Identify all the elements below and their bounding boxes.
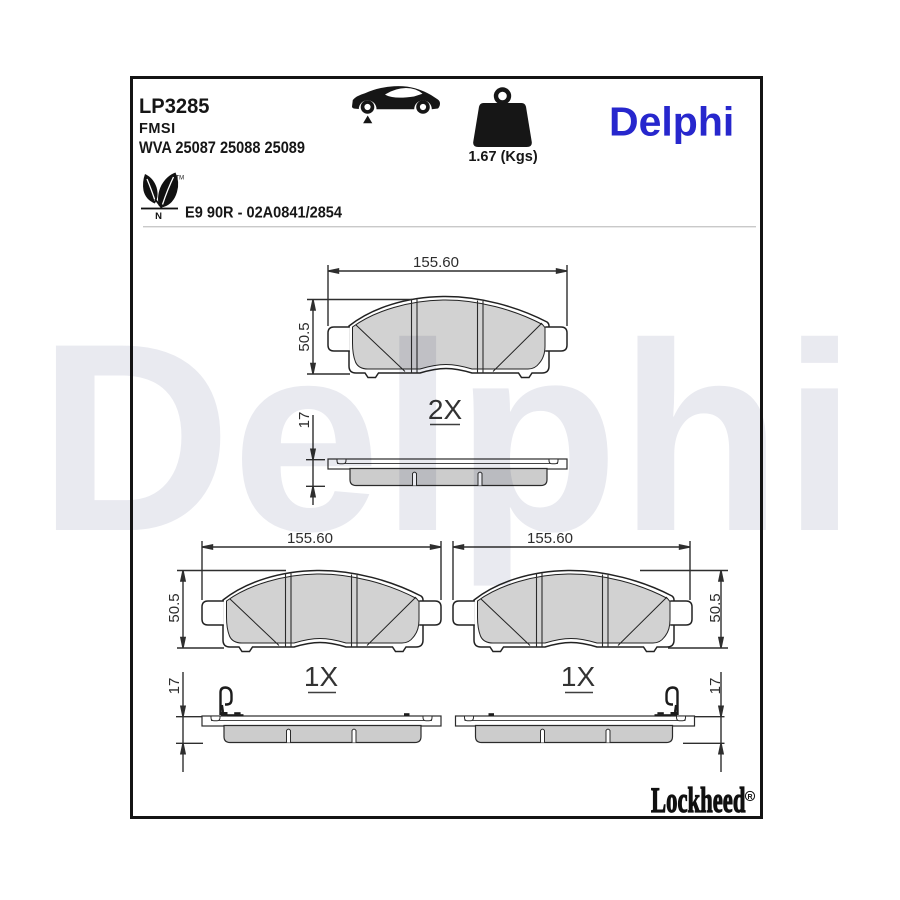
svg-text:WVA 25087 25088 25089: WVA 25087 25088 25089 — [139, 139, 305, 157]
svg-text:LP3285: LP3285 — [139, 94, 210, 118]
svg-text:Lockheed: Lockheed — [651, 780, 746, 821]
svg-text:N: N — [155, 211, 162, 222]
svg-text:FMSI: FMSI — [139, 121, 176, 137]
svg-text:1X: 1X — [561, 661, 596, 692]
svg-text:Delphi: Delphi — [609, 99, 734, 145]
svg-text:Delphi: Delphi — [38, 287, 857, 589]
svg-text:50.5: 50.5 — [707, 593, 724, 622]
svg-text:1X: 1X — [304, 661, 339, 692]
svg-text:TM: TM — [176, 176, 185, 182]
svg-text:R: R — [747, 794, 752, 801]
svg-text:E9 90R - 02A0841/2854: E9 90R - 02A0841/2854 — [185, 205, 342, 222]
svg-text:17: 17 — [166, 678, 183, 695]
svg-text:50.5: 50.5 — [166, 593, 183, 622]
svg-text:17: 17 — [707, 678, 724, 695]
svg-text:1.67 (Kgs): 1.67 (Kgs) — [468, 149, 537, 165]
svg-text:155.60: 155.60 — [413, 254, 459, 271]
